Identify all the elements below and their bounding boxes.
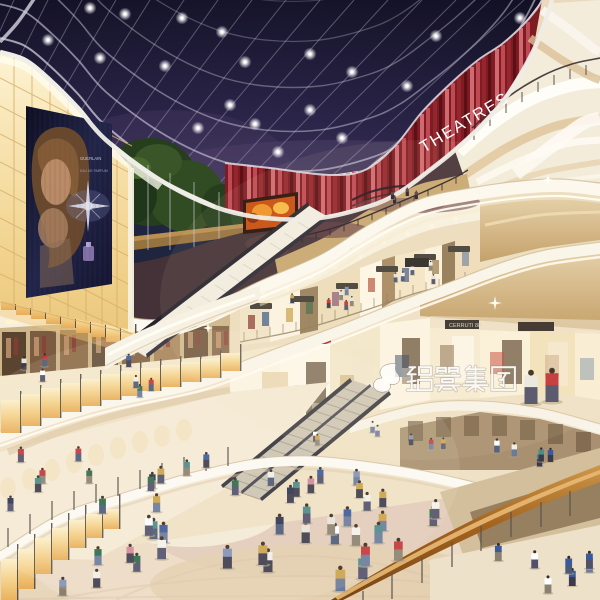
svg-text:GUERLAIN: GUERLAIN: [80, 156, 101, 161]
svg-text:EAU DE PARFUM: EAU DE PARFUM: [80, 169, 108, 173]
